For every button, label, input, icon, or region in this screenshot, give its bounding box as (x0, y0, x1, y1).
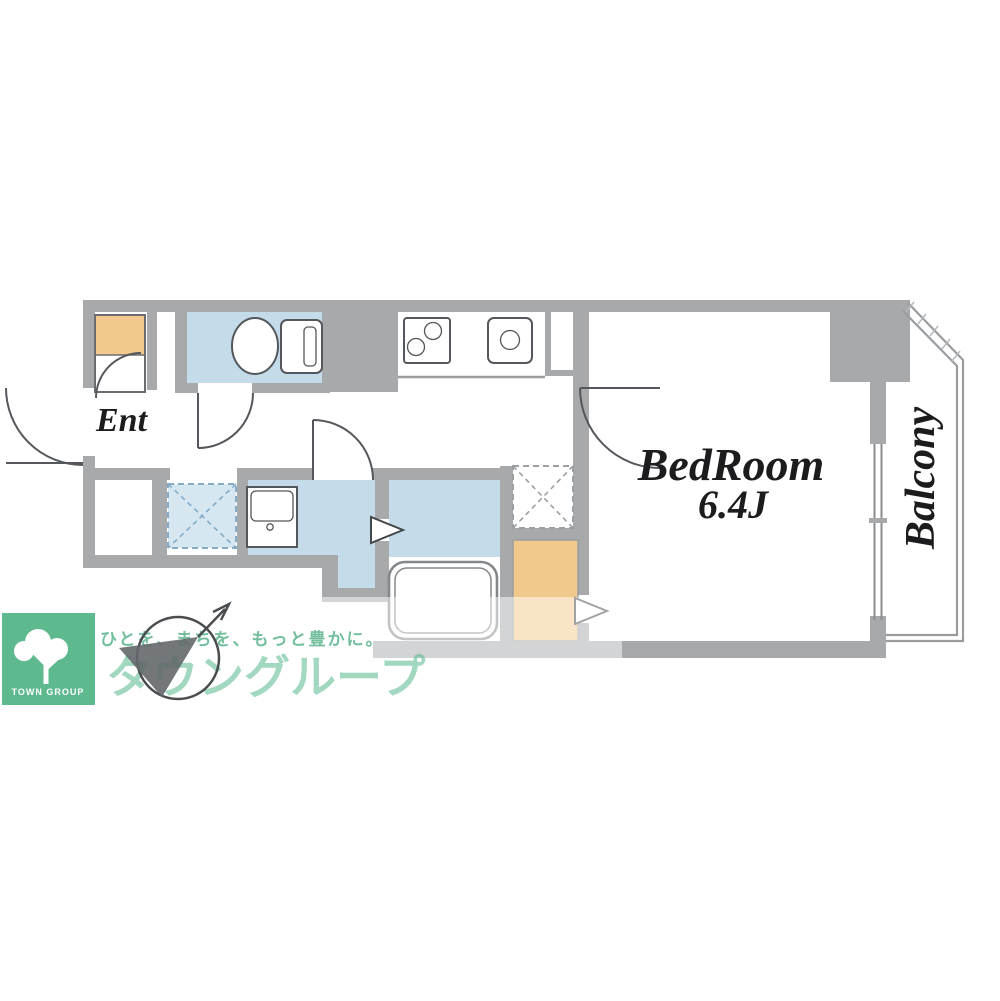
window-icon (869, 444, 887, 620)
shoe-cabinet-icon (95, 315, 145, 398)
bedroom-size-label: 6.4J (698, 482, 770, 527)
pillar (830, 300, 910, 382)
entrance-door-arc-icon (6, 388, 83, 465)
floorplan-drawing: Ent BedRoom 6.4J Balcony TOWN GROUP ひとを、… (0, 0, 1000, 1001)
kitchen-sink-icon (488, 318, 532, 363)
washbasin-icon (247, 487, 297, 547)
washing-machine-space-icon (168, 484, 236, 548)
floorplan-page: Ent BedRoom 6.4J Balcony TOWN GROUP ひとを、… (0, 0, 1000, 1001)
logo-square-text: TOWN GROUP (12, 687, 85, 697)
town-group-logo: TOWN GROUP (2, 613, 95, 705)
bathroom-floor (389, 480, 500, 557)
balcony-label: Balcony (898, 406, 944, 550)
washroom-passage-floor (333, 555, 375, 593)
stove-icon (404, 318, 450, 363)
entrance-label: Ent (95, 402, 149, 439)
washroom-door-arc-icon (313, 420, 373, 480)
refrigerator-space-icon (513, 466, 573, 528)
toilet-door-arc-icon (198, 393, 253, 448)
kitchen-counter (398, 312, 545, 377)
kitchen-side-block (322, 300, 398, 392)
